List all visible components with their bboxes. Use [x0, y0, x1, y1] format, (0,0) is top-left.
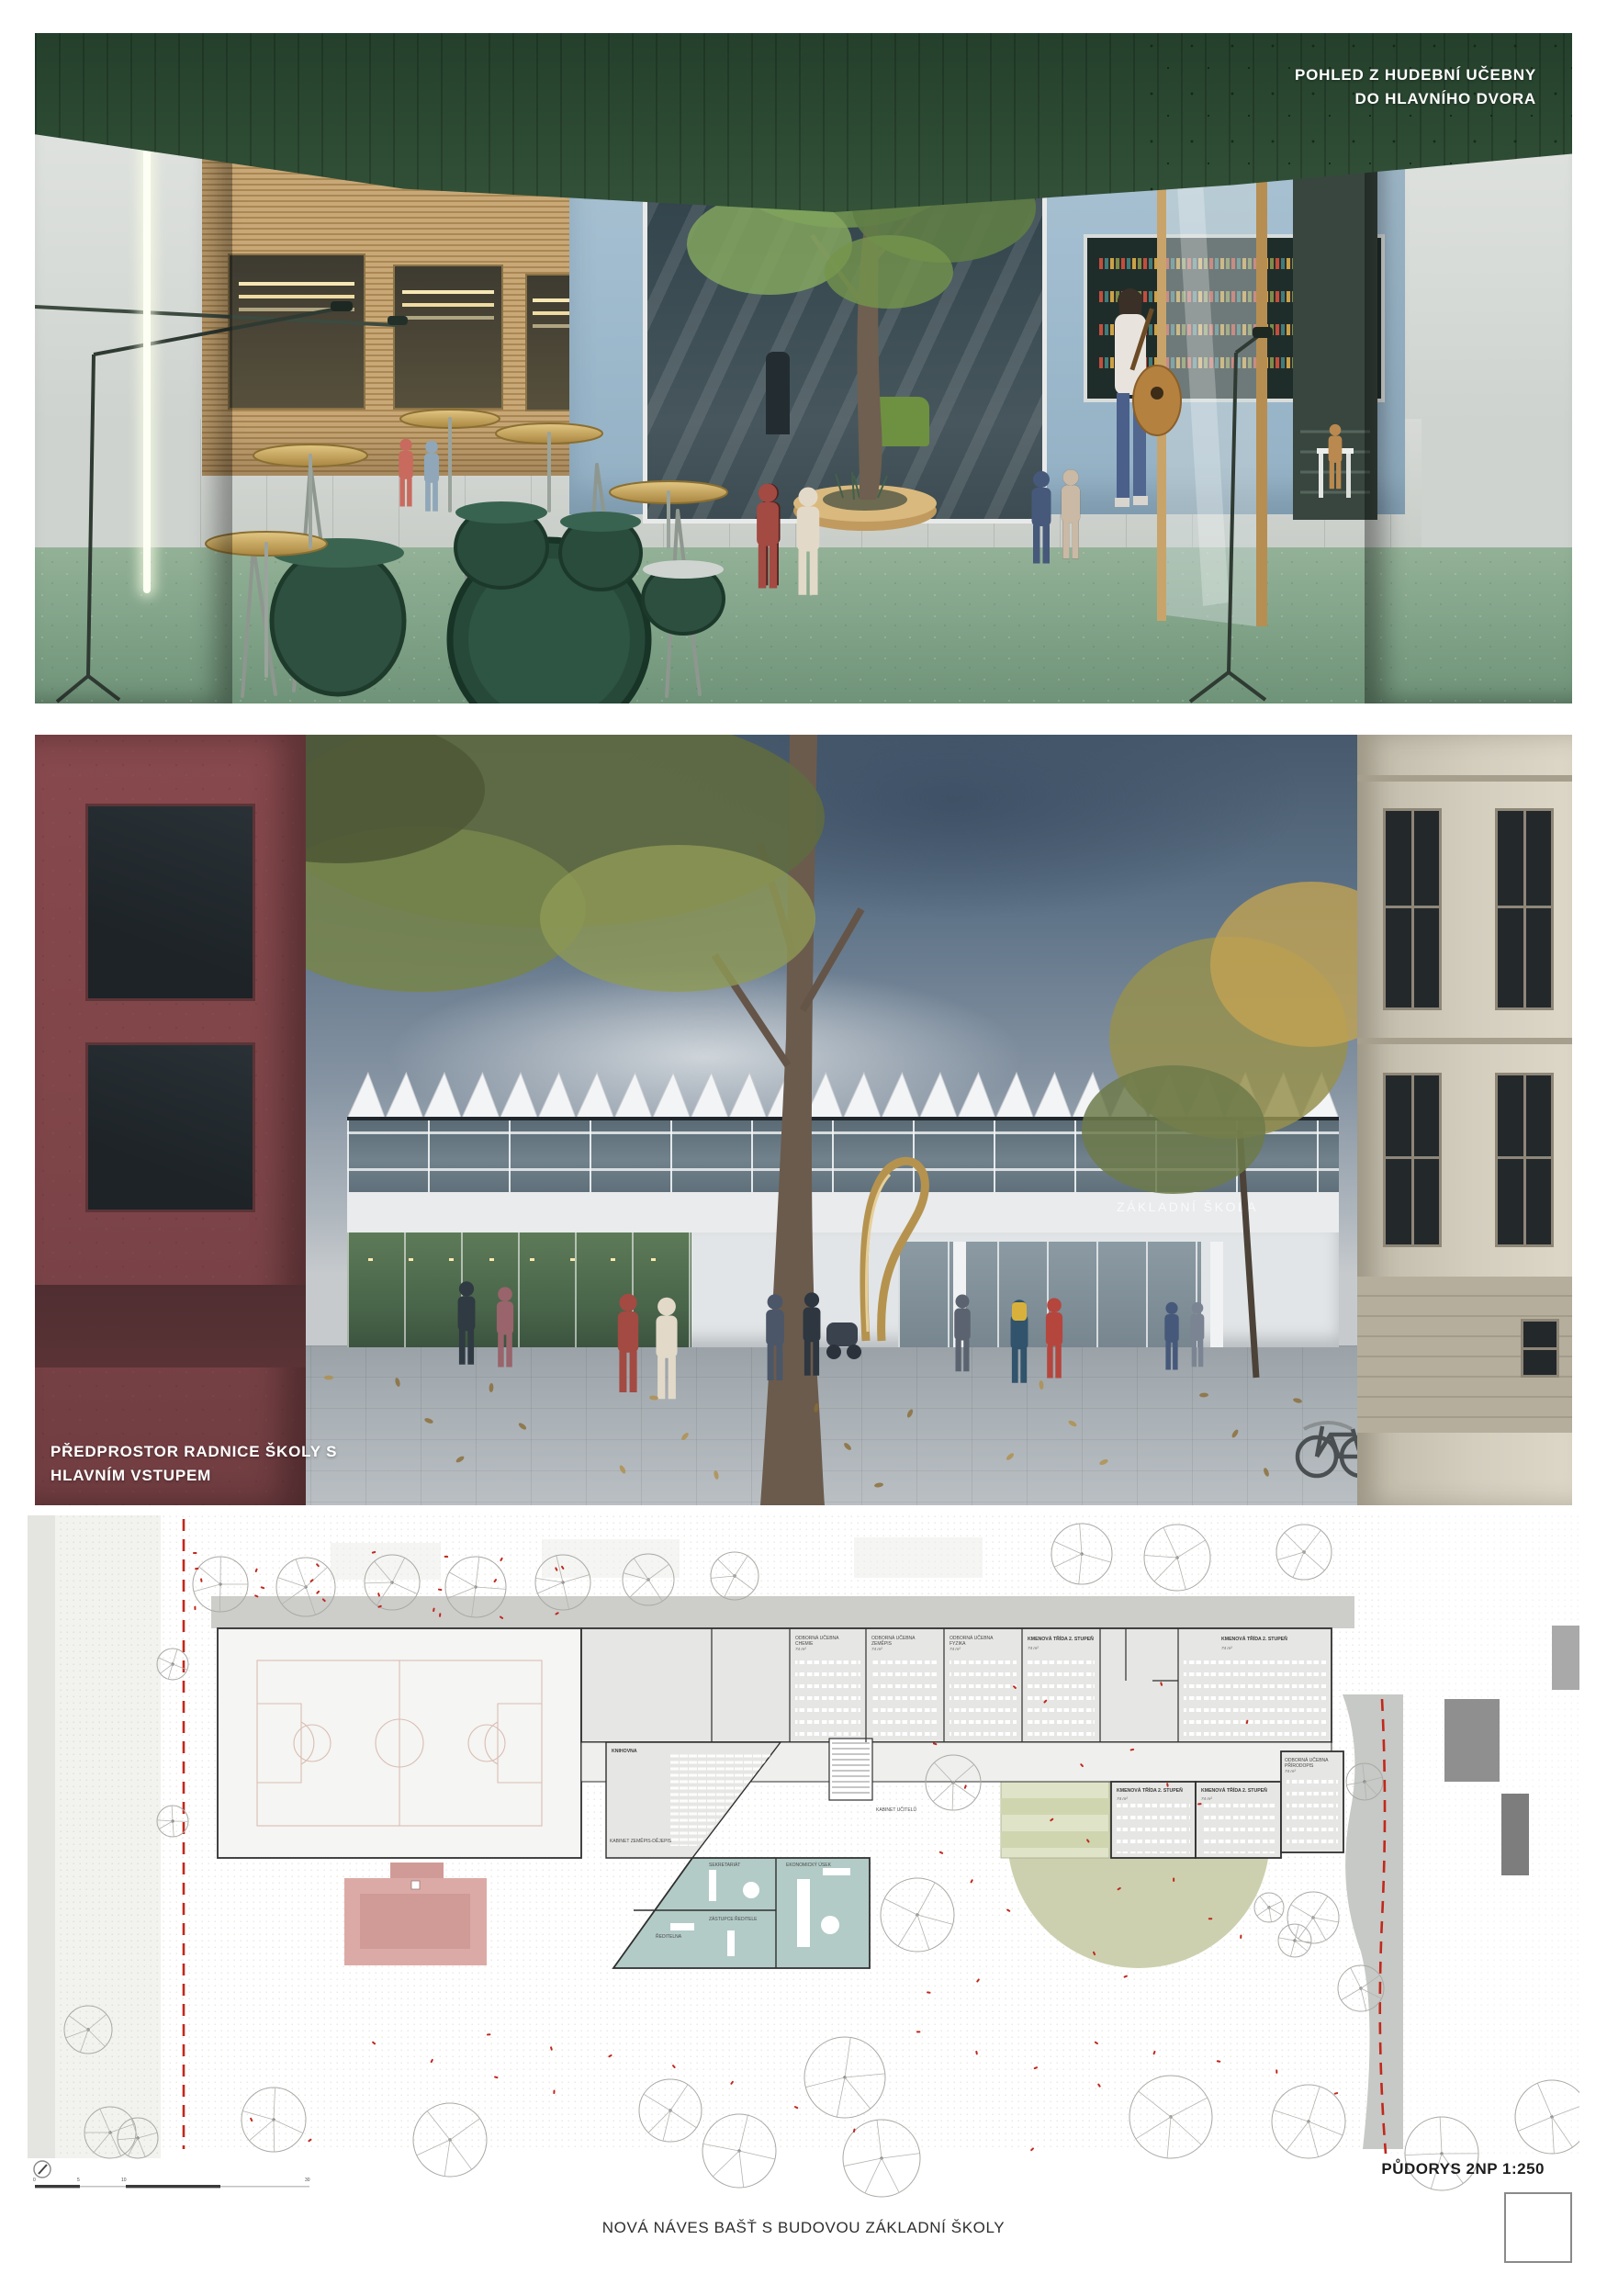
panel-caption-square: PŘEDPROSTOR RADNICE ŠKOLY S HLAVNÍM VSTU…: [51, 1440, 337, 1489]
svg-text:74 m²: 74 m²: [1221, 1646, 1232, 1650]
render-town-square-view: ZÁKLADNÍ ŠKOLA: [35, 735, 1572, 1505]
window: [85, 804, 255, 1001]
svg-text:KABINET UČITELŮ: KABINET UČITELŮ: [876, 1806, 916, 1813]
gold-loop-sculpture: [864, 1161, 926, 1341]
svg-text:74 m²: 74 m²: [950, 1647, 961, 1651]
scale-bar: 0 5 10 30: [33, 2178, 310, 2188]
svg-text:KNIHOVNA: KNIHOVNA: [612, 1749, 637, 1754]
window: [1495, 808, 1554, 1010]
svg-text:74 m²: 74 m²: [1028, 1646, 1039, 1650]
corner-box: [1504, 2192, 1572, 2263]
square-people: [458, 1281, 1205, 1399]
svg-text:EKONOMICKÝ ÚSEK: EKONOMICKÝ ÚSEK: [786, 1862, 832, 1868]
cornice: [1357, 775, 1572, 782]
svg-text:74 m²: 74 m²: [1201, 1796, 1212, 1801]
historic-beige-building: [1357, 735, 1572, 1505]
caption-line: PŘEDPROSTOR RADNICE ŠKOLY S: [51, 1440, 337, 1464]
window: [1383, 808, 1442, 1010]
floor-plan-drawing: ODBORNÁ UČEBNA CHEMIE 74 m² ODBORNÁ UČEB…: [28, 1515, 1579, 2200]
window: [85, 1042, 255, 1212]
svg-text:ODBORNÁ UČEBNA: ODBORNÁ UČEBNA: [871, 1635, 916, 1641]
svg-text:0: 0: [33, 2178, 36, 2183]
svg-text:30: 30: [305, 2178, 310, 2183]
north-arrow: [34, 2161, 51, 2178]
svg-text:ŘEDITELNA: ŘEDITELNA: [656, 1932, 682, 1940]
svg-text:10: 10: [121, 2178, 127, 2183]
drum-kit: [206, 410, 727, 703]
svg-text:ZEMĚPIS: ZEMĚPIS: [871, 1639, 893, 1647]
arcade-shadow: [35, 1285, 306, 1367]
svg-text:74 m²: 74 m²: [795, 1647, 806, 1651]
svg-text:74 m²: 74 m²: [871, 1647, 882, 1651]
svg-text:KMENOVÁ TŘÍDA 2. STUPEŇ: KMENOVÁ TŘÍDA 2. STUPEŇ: [1221, 1635, 1287, 1642]
plan-title: PŮDORYS 2NP 1:250: [1381, 2160, 1545, 2178]
svg-text:KMENOVÁ TŘÍDA 2. STUPEŇ: KMENOVÁ TŘÍDA 2. STUPEŇ: [1201, 1786, 1267, 1794]
svg-text:74 m²: 74 m²: [1285, 1769, 1296, 1773]
svg-text:SEKRETARIÁT: SEKRETARIÁT: [709, 1862, 740, 1868]
svg-text:ODBORNÁ UČEBNA: ODBORNÁ UČEBNA: [795, 1635, 839, 1641]
small-window: [1521, 1319, 1559, 1378]
floor-plan-svg: ODBORNÁ UČEBNA CHEMIE 74 m² ODBORNÁ UČEB…: [28, 1515, 1579, 2200]
svg-text:5: 5: [77, 2178, 80, 2183]
svg-text:KABINET ZEMĚPIS-DĚJEPIS: KABINET ZEMĚPIS-DĚJEPIS: [610, 1837, 672, 1844]
window: [1383, 1073, 1442, 1247]
board-caption: NOVÁ NÁVES BAŠŤ S BUDOVOU ZÁKLADNÍ ŠKOLY: [0, 2219, 1607, 2237]
panel-caption-music: POHLED Z HUDEBNÍ UČEBNY DO HLAVNÍHO DVOR…: [1295, 63, 1536, 112]
red-town-hall-building: [35, 735, 306, 1505]
render-music-room-view: POHLED Z HUDEBNÍ UČEBNY DO HLAVNÍHO DVOR…: [35, 33, 1572, 703]
caption-line: HLAVNÍM VSTUPEM: [51, 1464, 337, 1488]
caption-line: DO HLAVNÍHO DVORA: [1295, 87, 1536, 111]
cornice: [1357, 1038, 1572, 1044]
svg-text:KMENOVÁ TŘÍDA 2. STUPEŇ: KMENOVÁ TŘÍDA 2. STUPEŇ: [1117, 1786, 1183, 1794]
caption-line: POHLED Z HUDEBNÍ UČEBNY: [1295, 63, 1536, 87]
led-light-strip: [143, 141, 151, 593]
svg-text:ZÁSTUPCE ŘEDITELE: ZÁSTUPCE ŘEDITELE: [709, 1915, 758, 1922]
svg-text:KMENOVÁ TŘÍDA 2. STUPEŇ: KMENOVÁ TŘÍDA 2. STUPEŇ: [1028, 1635, 1094, 1642]
svg-text:ODBORNÁ UČEBNA: ODBORNÁ UČEBNA: [950, 1635, 994, 1641]
window: [1495, 1073, 1554, 1247]
svg-text:ODBORNÁ UČEBNA: ODBORNÁ UČEBNA: [1285, 1757, 1329, 1763]
svg-text:PŘÍRODOPIS: PŘÍRODOPIS: [1285, 1761, 1314, 1769]
svg-text:74 m²: 74 m²: [1117, 1796, 1128, 1801]
